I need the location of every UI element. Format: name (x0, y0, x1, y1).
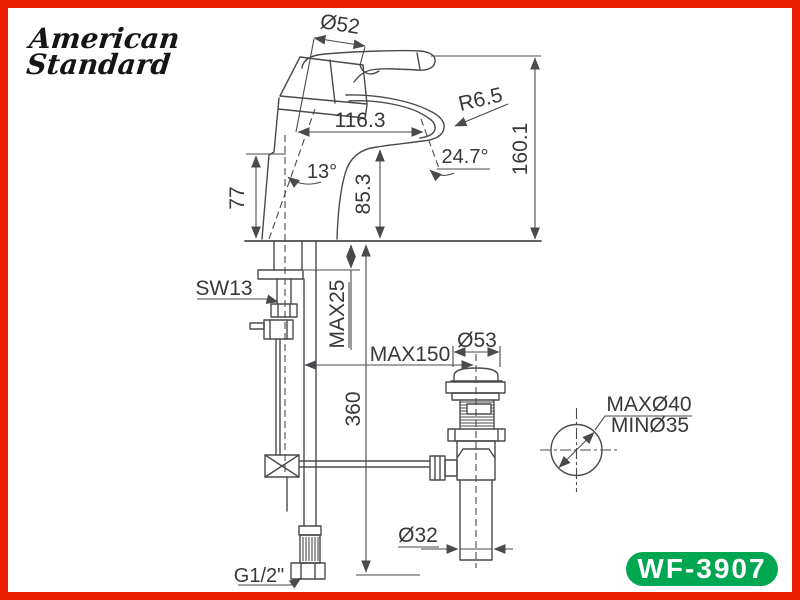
dimension-labels: Ø52 116.3 R6.5 24.7° 13° 85.3 77 160.1 S… (195, 10, 691, 587)
dim-body-tilt-angle: 13° (307, 161, 337, 183)
bordered-frame: American Standard (0, 0, 800, 600)
dim-outlet-height: 85.3 (352, 174, 375, 215)
dim-hose-wrench: SW13 (195, 277, 252, 300)
dim-hole-diameter-max: MAXØ40 (606, 393, 691, 416)
dim-spout-top-diameter: Ø52 (319, 10, 362, 39)
dim-drain-flange-diameter: Ø53 (457, 329, 497, 352)
dim-hose-length: 360 (342, 391, 365, 426)
dim-base-front-height: 77 (226, 186, 249, 209)
dim-spout-tip-radius: R6.5 (456, 83, 504, 115)
technical-drawing: Ø52 116.3 R6.5 24.7° 13° 85.3 77 160.1 S… (8, 8, 800, 600)
dim-max-deck-thickness: MAX25 (326, 280, 349, 349)
dim-supply-connection: G1/2" (234, 565, 284, 587)
dim-max-drain-offset: MAX150 (370, 343, 451, 366)
drain-assembly (445, 368, 505, 560)
dim-overall-height: 160.1 (509, 123, 532, 176)
dim-hole-diameter-min: MINØ35 (611, 414, 689, 437)
mounting-hardware (245, 241, 541, 339)
dim-outlet-angle: 24.7° (442, 146, 489, 168)
dim-spout-reach: 116.3 (335, 109, 386, 132)
dim-tailpiece-diameter: Ø32 (398, 524, 438, 547)
supply-hose (291, 241, 325, 579)
model-badge: WF-3907 (626, 552, 778, 586)
